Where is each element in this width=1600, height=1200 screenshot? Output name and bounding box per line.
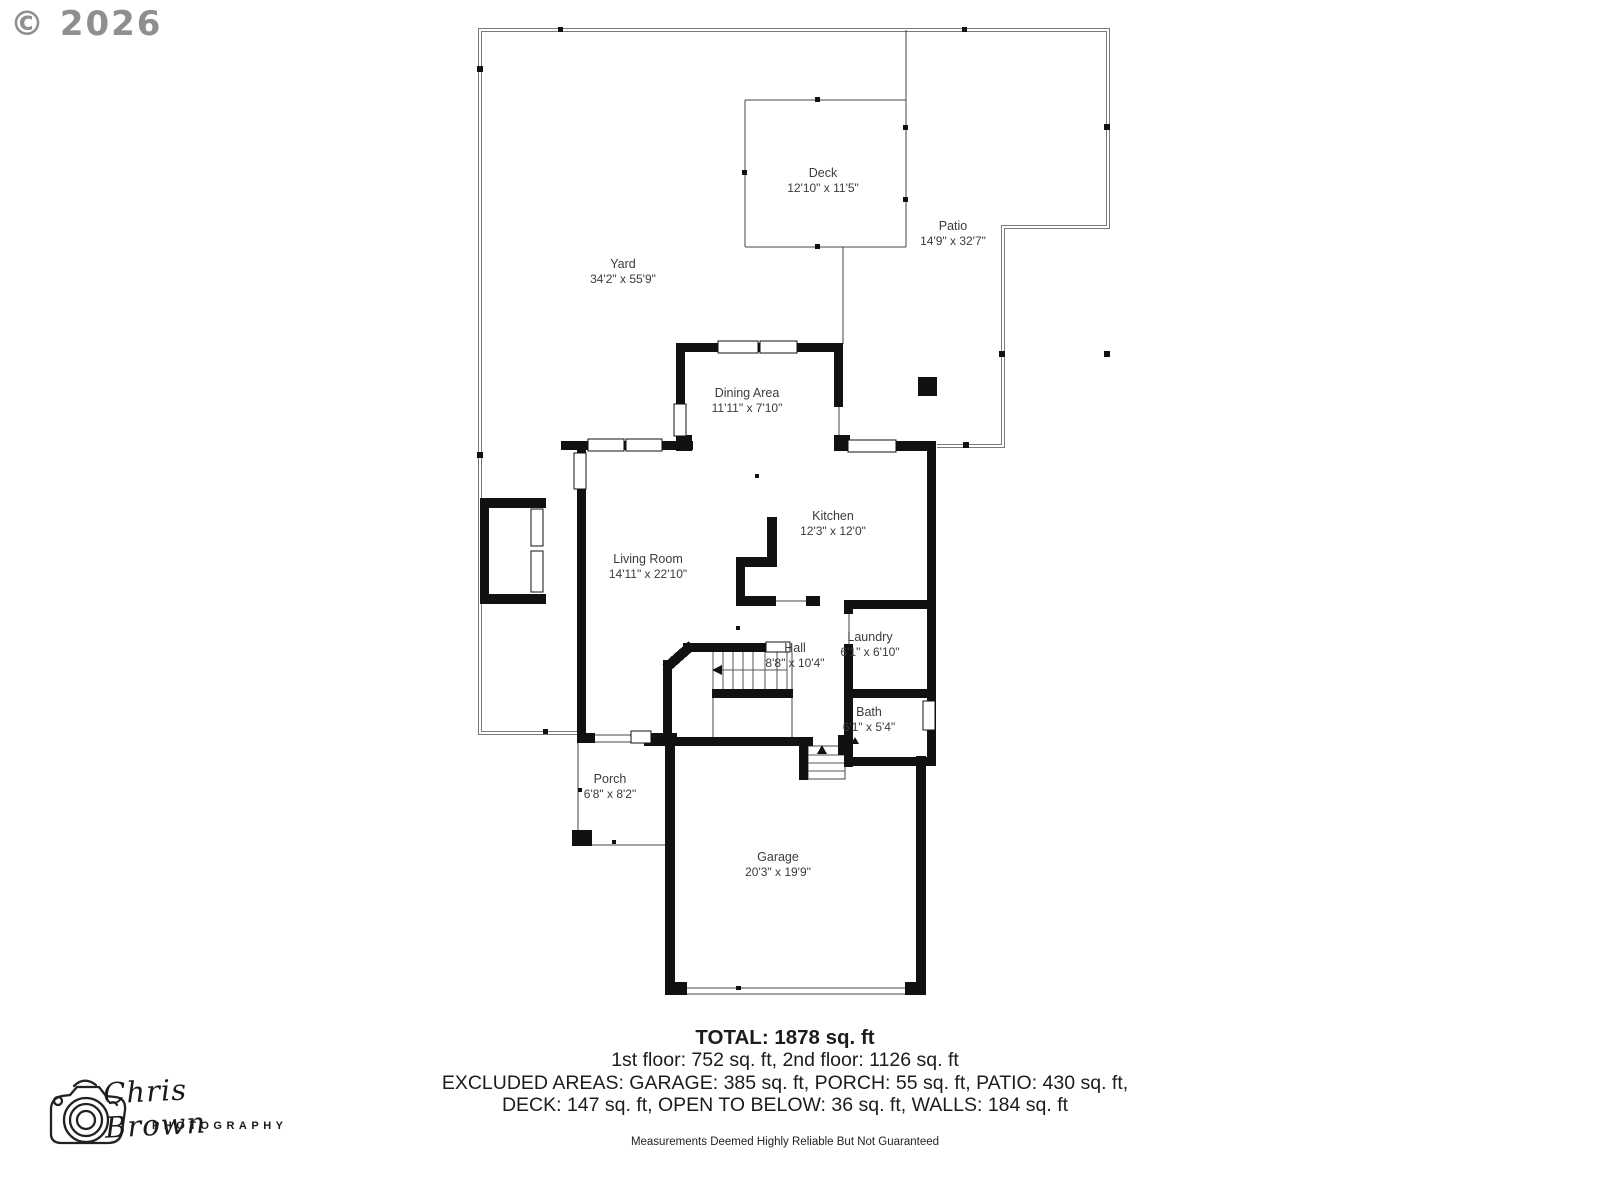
room-label-laundry: Laundry 6'1" x 6'10" — [840, 630, 899, 659]
disclaimer-text: Measurements Deemed Highly Reliable But … — [235, 1136, 1335, 1148]
photographer-logo: Chris Brown PHOTOGRAPHY — [46, 1058, 286, 1158]
room-label-porch: Porch 6'8" x 8'2" — [584, 772, 636, 801]
room-name: Yard — [590, 257, 656, 272]
room-name: Hall — [765, 641, 824, 656]
area-summary: TOTAL: 1878 sq. ft 1st floor: 752 sq. ft… — [235, 1026, 1335, 1117]
room-dims: 20'3" x 19'9" — [745, 865, 811, 879]
room-dims: 6'1" x 6'10" — [840, 645, 899, 659]
room-name: Patio — [920, 219, 986, 234]
room-name: Bath — [843, 705, 895, 720]
room-dims: 12'10" x 11'5" — [787, 181, 859, 195]
room-label-hall: Hall 8'8" x 10'4" — [765, 641, 824, 670]
room-dims: 12'3" x 12'0" — [800, 524, 866, 538]
room-name: Garage — [745, 850, 811, 865]
room-label-living: Living Room 14'11" x 22'10" — [609, 552, 687, 581]
excluded-areas-line-2: DECK: 147 sq. ft, OPEN TO BELOW: 36 sq. … — [235, 1094, 1335, 1117]
room-label-patio: Patio 14'9" x 32'7" — [920, 219, 986, 248]
room-name: Dining Area — [712, 386, 783, 401]
total-area-line: TOTAL: 1878 sq. ft — [235, 1026, 1335, 1049]
room-label-deck: Deck 12'10" x 11'5" — [787, 166, 859, 195]
room-name: Kitchen — [800, 509, 866, 524]
floorplan-page: © 2026 — [0, 0, 1600, 1200]
room-dims: 14'9" x 32'7" — [920, 234, 986, 248]
room-label-kitchen: Kitchen 12'3" x 12'0" — [800, 509, 866, 538]
room-label-garage: Garage 20'3" x 19'9" — [745, 850, 811, 879]
room-dims: 6'1" x 5'4" — [843, 720, 895, 734]
room-name: Porch — [584, 772, 636, 787]
room-name: Laundry — [840, 630, 899, 645]
room-dims: 6'8" x 8'2" — [584, 787, 636, 801]
brand-name: Chris Brown — [102, 1067, 287, 1144]
room-label-dining: Dining Area 11'11" x 7'10" — [712, 386, 783, 415]
floor-areas-line: 1st floor: 752 sq. ft, 2nd floor: 1126 s… — [235, 1049, 1335, 1072]
room-dims: 11'11" x 7'10" — [712, 401, 783, 415]
excluded-areas-line-1: EXCLUDED AREAS: GARAGE: 385 sq. ft, PORC… — [235, 1072, 1335, 1095]
room-name: Living Room — [609, 552, 687, 567]
room-label-bath: Bath 6'1" x 5'4" — [843, 705, 895, 734]
brand-subtitle: PHOTOGRAPHY — [152, 1120, 287, 1132]
room-label-yard: Yard 34'2" x 55'9" — [590, 257, 656, 286]
room-dims: 34'2" x 55'9" — [590, 272, 656, 286]
room-dims: 8'8" x 10'4" — [765, 656, 824, 670]
room-dims: 14'11" x 22'10" — [609, 567, 687, 581]
room-name: Deck — [787, 166, 859, 181]
